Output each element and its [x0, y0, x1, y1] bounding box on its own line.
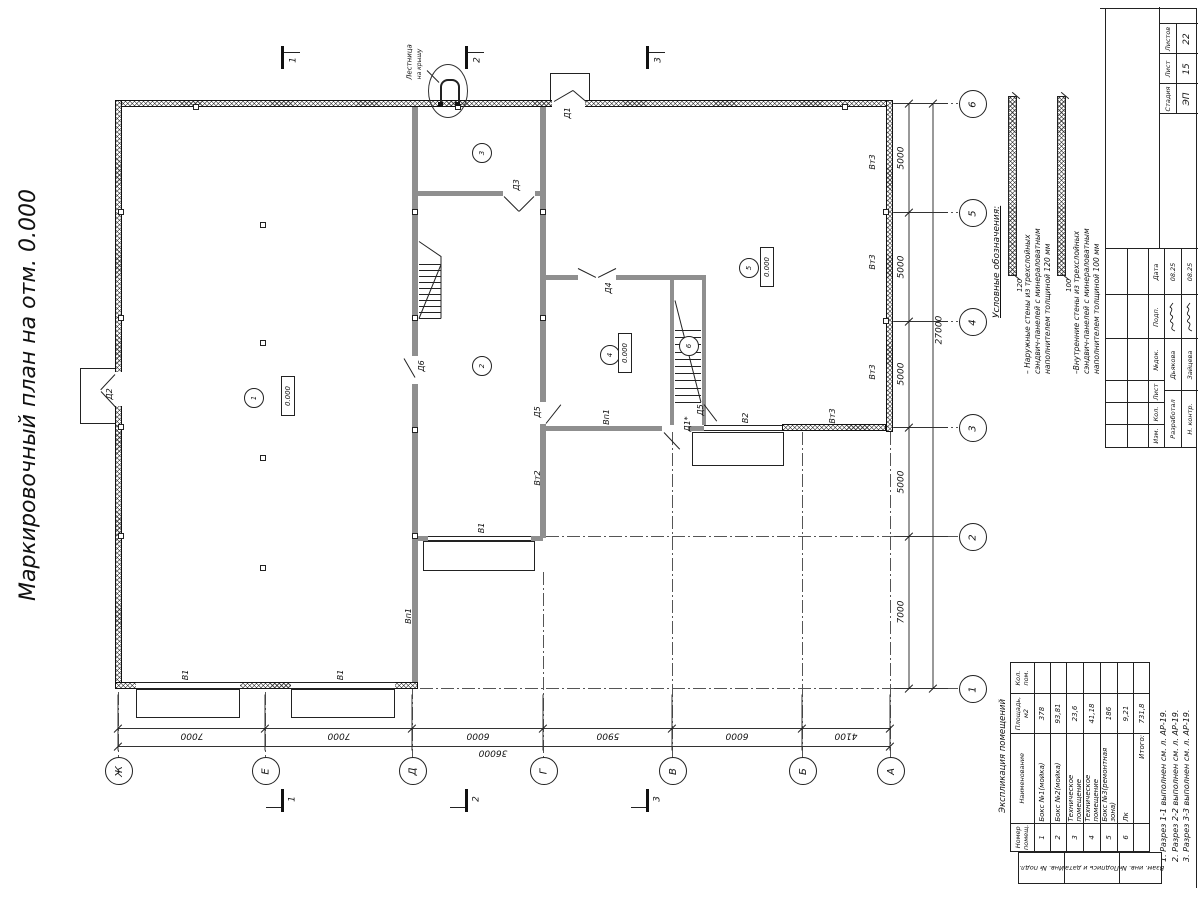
stair-step: [419, 276, 441, 277]
room-number: 6: [685, 344, 693, 348]
extension-line: [894, 688, 948, 689]
stage-label: Стадия: [1164, 87, 1172, 112]
column-mark: [193, 104, 199, 110]
titleblock-line: [1106, 338, 1164, 339]
grid-bubble: 5: [959, 199, 987, 227]
extension-line: [894, 427, 948, 428]
room-number-cell: 6: [1118, 823, 1134, 851]
plan-annotation: В1: [337, 670, 345, 681]
sheet-label: Лист: [1164, 61, 1172, 77]
titleblock-line: [1148, 249, 1149, 447]
titleblock-column-header: №док.: [1152, 349, 1160, 370]
grid-axis-number: 4: [968, 319, 979, 325]
gate-opening: [428, 536, 531, 541]
section-mark: [646, 789, 649, 812]
section-label: 2: [473, 796, 482, 802]
grid-axis-number: 5: [968, 210, 979, 216]
room-name-cell: Бокс №3(ремонтная зона): [1101, 733, 1118, 823]
wall-thickness-label: 120: [1016, 279, 1024, 292]
plan-annotation: Д2: [106, 388, 114, 399]
grid-axis-number: 6: [968, 101, 979, 107]
room-area-cell: 9,21: [1118, 694, 1134, 734]
plan-annotation: Вп1: [405, 608, 413, 624]
dimension-label: 5000: [898, 363, 907, 386]
section-arrow: [649, 52, 665, 53]
frame-line: [1196, 8, 1197, 888]
roof-ladder-label: на крышу: [417, 49, 423, 80]
plan-annotation: В2: [742, 413, 750, 424]
dimension-label: 6000: [466, 731, 489, 740]
side-strips: Инв. № подл.Подпись и датаВзам. инв. №: [1018, 852, 1162, 884]
dimension-label: 5000: [898, 146, 907, 169]
total-label-cell: Итого:: [1134, 733, 1150, 823]
grid-bubble: 4: [959, 308, 987, 336]
column-mark: [260, 455, 266, 461]
room-count-cell: [1118, 663, 1134, 694]
room-number: 5: [745, 266, 753, 270]
column-mark: [883, 318, 889, 324]
column-mark: [412, 427, 418, 433]
apron-rect: [136, 689, 240, 718]
grid-axis-letter: Г: [538, 768, 549, 774]
grid-axis-number: 2: [968, 534, 979, 540]
section-label: 1: [289, 796, 298, 802]
grid-bubble: 2: [959, 523, 987, 551]
titleblock-line: [1159, 113, 1198, 114]
section-mark: [281, 789, 284, 812]
room-number-circle: 2: [472, 356, 492, 376]
dimension-line: [118, 728, 890, 729]
side-strip-label: Подпись и дата: [1065, 864, 1119, 872]
column-mark: [118, 315, 124, 321]
wall-symbol-swatch: [1008, 96, 1017, 276]
room-number: 2: [478, 364, 486, 368]
titleblock-line: [1159, 53, 1198, 54]
column-mark: [118, 209, 124, 215]
frame-line: [1100, 8, 1196, 9]
column-mark: [260, 222, 266, 228]
section-label: 3: [655, 57, 664, 63]
dimension-label: 4100: [835, 731, 858, 740]
stair-cut-line: [419, 264, 442, 318]
room-area-cell: 23,6: [1067, 694, 1084, 734]
room-number-circle: 1: [244, 388, 264, 408]
extension-line: [118, 695, 119, 751]
grid-bubble: 6: [959, 90, 987, 118]
titleblock-side-strip: Подпись и дата: [1065, 853, 1120, 883]
dimension-label: 7000: [898, 601, 907, 624]
stair-step: [675, 402, 701, 403]
legend-items: 120– Наружные стены из трехслойных сэндв…: [1008, 64, 1102, 376]
grid-axis-letter: Б: [798, 768, 809, 775]
extension-line: [894, 212, 948, 213]
titleblock-role: Н. контр.: [1186, 403, 1194, 434]
plan-annotation: В1: [478, 523, 486, 534]
stair-step: [419, 318, 441, 319]
titleblock-line: [1159, 23, 1198, 24]
plan-annotation: Д5: [697, 404, 705, 415]
legend-item: 120– Наружные стены из трехслойных сэндв…: [1008, 64, 1052, 376]
grid-bubble: А: [877, 757, 905, 785]
room-name-cell: Бокс №2(мойка): [1051, 733, 1067, 823]
roof-ladder-foot: [438, 102, 443, 106]
room-number-cell: 4: [1084, 823, 1101, 851]
titleblock-line: [1106, 294, 1164, 295]
sheet-value: 15: [1182, 63, 1192, 74]
stair-step: [675, 366, 701, 367]
room-name-cell: Техническое помещение: [1084, 733, 1101, 823]
section-mark: [281, 46, 284, 69]
section-mark: [465, 46, 468, 69]
section-mark: [465, 789, 468, 812]
table-header: Номер помещ.: [1011, 823, 1035, 851]
empty-cell: [1134, 663, 1150, 694]
grid-bubble: В: [659, 757, 687, 785]
signature: [1166, 302, 1180, 332]
stair-step: [675, 395, 701, 396]
stair-edge: [441, 257, 442, 319]
room-name-cell: Бокс №1(мойка): [1035, 733, 1051, 823]
titleblock-line: [1106, 424, 1164, 425]
room-count-cell: [1067, 663, 1084, 694]
titleblock-line: [1127, 249, 1128, 447]
column-mark: [412, 533, 418, 539]
section-label: 3: [654, 796, 663, 802]
dimension-label: 7000: [327, 731, 350, 740]
grid-axis-letter: Ж: [114, 766, 125, 777]
room-count-cell: [1035, 663, 1051, 694]
apron-rect: [692, 432, 784, 466]
external-wall: [782, 424, 886, 431]
dimension-line: [933, 104, 934, 689]
plan-annotation: Вт3: [829, 408, 837, 423]
column-mark: [883, 209, 889, 215]
extension-line: [543, 695, 544, 751]
side-strip-label: Инв. № подл.: [1019, 864, 1064, 872]
room-number-cell: 2: [1051, 823, 1067, 851]
titleblock-line: [1159, 83, 1198, 84]
extension-line: [672, 695, 673, 751]
titleblock-column-header: Подп.: [1152, 307, 1160, 327]
apron-rect: [291, 689, 395, 718]
column-mark: [118, 533, 124, 539]
elevation-value: 0.000: [284, 386, 292, 406]
stair-step: [419, 294, 441, 295]
drawing-sheet: Маркировочный план на отм. 0.000 Лестниц…: [0, 0, 1200, 900]
door-opening: [503, 191, 535, 196]
grid-axis-letter: А: [886, 768, 897, 775]
empty-cell: [1134, 823, 1150, 851]
column-mark: [412, 315, 418, 321]
door-leaf: [546, 404, 562, 424]
roof-ladder-foot: [455, 102, 460, 106]
stair-step: [675, 373, 701, 374]
wall-symbol-swatch: [1057, 96, 1066, 276]
titleblock-line: [1106, 402, 1164, 403]
grid-axis-number: 3: [968, 425, 979, 431]
room-schedule: Экспликация помещений Номер помещ.Наимен…: [998, 660, 1158, 852]
room-count-cell: [1101, 663, 1118, 694]
titleblock-date: 08.25: [1169, 263, 1177, 282]
plan-annotation: Вт3: [869, 364, 877, 379]
apron-rect: [423, 541, 535, 571]
dimension-label: 6000: [726, 731, 749, 740]
titleblock-line: [1176, 24, 1177, 114]
elevation-value: 0.000: [763, 257, 771, 277]
plan-annotation: Д4: [605, 282, 613, 293]
titleblock-line: [1106, 248, 1198, 249]
room-number-circle: 5: [739, 258, 759, 278]
room-count-cell: [1084, 663, 1101, 694]
stair-step: [419, 264, 441, 265]
room-number-circle: 3: [472, 143, 492, 163]
stair-step: [675, 330, 701, 331]
sheets-label: Листов: [1164, 27, 1172, 51]
door-opening: [552, 100, 585, 107]
door-opening: [578, 275, 616, 280]
titleblock-line: [1164, 249, 1165, 447]
column-mark: [260, 340, 266, 346]
titleblock-column-header: Кол.: [1152, 407, 1160, 422]
column-mark: [540, 209, 546, 215]
legend-title: Условные обозначения:: [992, 64, 1002, 318]
stair-edge: [419, 241, 442, 257]
room-number: 1: [250, 396, 258, 400]
plan-annotation: Вт3: [869, 254, 877, 269]
total-value-cell: 731,8: [1134, 694, 1150, 734]
room-number-cell: 5: [1101, 823, 1118, 851]
stair-step: [675, 380, 701, 381]
stair-step: [675, 359, 701, 360]
room-number-circle: 4: [600, 345, 620, 365]
titleblock-column-header: Дата: [1152, 264, 1160, 281]
signature: [1183, 302, 1197, 332]
grid-axis-letter: В: [668, 768, 679, 775]
column-mark: [842, 104, 848, 110]
room-schedule-title: Экспликация помещений: [998, 660, 1008, 852]
column-mark: [540, 315, 546, 321]
internal-wall: [543, 275, 706, 280]
grid-bubble: Д: [399, 757, 427, 785]
elevation-mark: 0.000: [281, 376, 295, 416]
roof-ladder-label: Лестница: [407, 44, 414, 80]
grid-axis-letter: Е: [260, 768, 271, 774]
legend-item: 100–Внутренние стены из трехслойных сэнд…: [1057, 64, 1101, 376]
extension-line: [890, 695, 891, 751]
gate-opening: [136, 682, 240, 689]
room-number-cell: 1: [1035, 823, 1051, 851]
dimension-label: 5900: [596, 731, 619, 740]
titleblock-side-strip: Инв. № подл.: [1019, 853, 1065, 883]
room-area-cell: 186: [1101, 694, 1118, 734]
grid-axis-number: 1: [968, 686, 979, 692]
grid-bubble: 1: [959, 675, 987, 703]
elevation-value: 0.000: [621, 343, 629, 363]
section-label: 2: [474, 57, 483, 63]
room-number: 3: [478, 151, 486, 155]
sheets-value: 22: [1182, 33, 1192, 44]
dimension-label: 5000: [898, 470, 907, 493]
room-area-cell: 378: [1035, 694, 1051, 734]
grid-bubble: 3: [959, 414, 987, 442]
table-header: Площадь, м2: [1011, 694, 1035, 734]
room-area-cell: 41,18: [1084, 694, 1101, 734]
extension-line: [894, 103, 948, 104]
legend-item-text: – Наружные стены из трехслойных сэндвич-…: [1023, 64, 1052, 374]
extension-line: [894, 536, 948, 537]
plan-annotation: Вт2: [534, 470, 542, 485]
room-area-cell: 93,81: [1051, 694, 1067, 734]
table-header: Кол. пом.: [1011, 663, 1035, 694]
room-schedule-table: Номер помещ.НаименованиеПлощадь, м2Кол. …: [1010, 662, 1150, 852]
side-strip-label: Взам. инв. №: [1120, 864, 1164, 872]
section-label: 1: [290, 57, 299, 63]
external-wall: [115, 100, 893, 107]
room-count-cell: [1051, 663, 1067, 694]
plan-annotation: В1: [182, 670, 190, 681]
dimension-label: 5000: [898, 255, 907, 278]
external-wall: [886, 100, 893, 432]
section-arrow: [468, 52, 484, 53]
column-mark: [260, 565, 266, 571]
grid-bubble: Б: [789, 757, 817, 785]
door-leaf: [504, 196, 520, 212]
room-number-cell: 3: [1067, 823, 1084, 851]
notes: 1. Разрез 1-1 выполнен см. л. АР-19. 2. …: [1158, 696, 1198, 862]
room-name-cell: Лк: [1118, 733, 1134, 823]
plan-annotation: Д6: [418, 360, 426, 371]
dimension-label: 7000: [180, 731, 203, 740]
grid-bubble: Е: [252, 757, 280, 785]
door-leaf: [519, 196, 535, 212]
legend: Условные обозначения: 120– Наружные стен…: [992, 64, 1110, 376]
plan-annotation: Д1: [564, 107, 572, 118]
column-mark: [412, 209, 418, 215]
gate-opening: [704, 425, 782, 431]
dimension-label: 27000: [936, 316, 945, 345]
titleblock-name: Зайцева: [1186, 351, 1194, 380]
titleblock-column-header: Лист: [1152, 384, 1160, 400]
plan-annotation: Д1*: [684, 416, 692, 431]
grid-axis-letter: Д: [408, 767, 419, 775]
room-number-circle: 6: [679, 336, 699, 356]
plan-annotation: Д3: [513, 179, 521, 190]
stage-value: ЭП: [1182, 92, 1192, 105]
column-mark: [118, 424, 124, 430]
stair-step: [419, 312, 441, 313]
extension-line: [802, 695, 803, 751]
wall-thickness-label: 100: [1065, 279, 1073, 292]
titleblock-line: [1106, 380, 1164, 381]
internal-wall: [670, 280, 674, 425]
titleblock-line: [1181, 249, 1182, 447]
dimension-line: [909, 104, 910, 689]
stair-step: [419, 300, 441, 301]
titleblock-column-header: Изм.: [1152, 428, 1160, 443]
room-number: 4: [606, 353, 614, 357]
table-header: Наименование: [1011, 733, 1035, 823]
titleblock-role: Разработал: [1169, 399, 1177, 438]
grid-bubble: Г: [530, 757, 558, 785]
plan-annotation: Д5: [534, 406, 542, 417]
extension-line: [412, 695, 413, 751]
extension-line: [265, 695, 266, 751]
titleblock-name: Дьякова: [1169, 351, 1177, 380]
plan-annotation: Вп1: [603, 409, 611, 425]
grid-bubble: Ж: [105, 757, 133, 785]
plan-annotation: Вт3: [869, 154, 877, 169]
title-block: Изм.Кол.Лист№док.Подп.ДатаРазработалДьяк…: [1105, 8, 1197, 448]
elevation-mark: 0.000: [760, 247, 774, 287]
section-mark: [646, 46, 649, 69]
door-opening: [114, 372, 123, 406]
elevation-mark: 0.000: [618, 333, 632, 373]
stair-step: [419, 282, 441, 283]
internal-wall: [546, 426, 662, 431]
titleblock-side-strip: Взам. инв. №: [1120, 853, 1164, 883]
dimension-label: 36000: [479, 748, 508, 757]
titleblock-line: [1159, 7, 1160, 249]
gate-opening: [291, 682, 395, 689]
titleblock-date: 08.25: [1186, 263, 1194, 282]
grid-axis-line: [420, 688, 958, 689]
section-arrow: [284, 52, 300, 53]
legend-item-text: –Внутренние стены из трехслойных сэндвич…: [1072, 64, 1101, 374]
room-name-cell: Техническое помещение: [1067, 733, 1084, 823]
